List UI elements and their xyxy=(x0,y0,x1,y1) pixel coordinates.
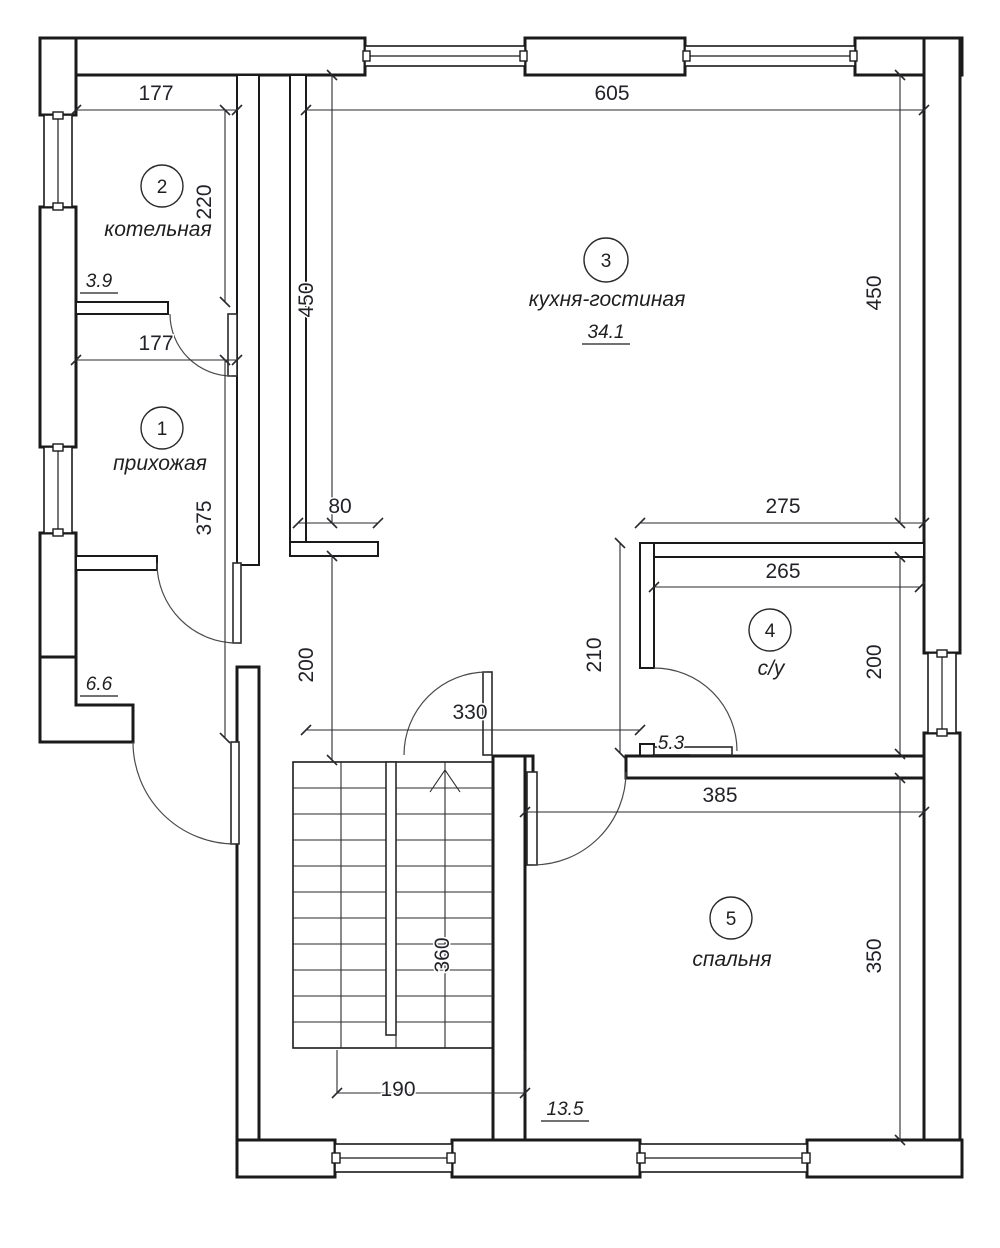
west-wall-lower-segment xyxy=(40,533,76,657)
stair-hall-west-wall xyxy=(237,667,259,1140)
dim-kitchen-depth-right: 450 xyxy=(863,275,886,310)
room-name: с/у xyxy=(758,657,786,680)
room-name: кухня-гостиная xyxy=(529,288,686,311)
stair-landing-window xyxy=(332,1144,455,1172)
bedroom-window xyxy=(637,1144,810,1172)
north-wall-middle-pier xyxy=(525,38,685,75)
west-wall-step-block xyxy=(40,657,133,742)
west-wall-top-segment xyxy=(40,38,76,115)
dim-bath-depth-right: 200 xyxy=(863,644,886,679)
room-number: 4 xyxy=(765,621,776,642)
kitchen-niche-stub-wall xyxy=(290,542,378,556)
room-label-kitchen: 3 кухня-гостиная 34.1 xyxy=(529,238,686,344)
boiler-door xyxy=(170,314,237,376)
room-area: 34.1 xyxy=(588,322,625,343)
dim-boiler-width: 177 xyxy=(138,82,173,105)
bedroom-west-wall xyxy=(493,756,525,1140)
floor-plan-drawing: 177 605 220 450 450 177 375 80 275 265 2… xyxy=(0,0,1000,1248)
hall-south-wall xyxy=(76,556,157,570)
dim-bedroom-width: 385 xyxy=(702,784,737,807)
room-label-bedroom: 5 спальня 13.5 xyxy=(541,897,772,1121)
dim-hall-depth: 375 xyxy=(193,500,216,535)
room-label-boiler: 2 котельная 3.9 xyxy=(80,165,212,293)
east-wall-upper-segment xyxy=(924,38,960,653)
boiler-window xyxy=(44,112,72,210)
south-wall-east-pier xyxy=(807,1140,962,1177)
dim-corridor-width: 330 xyxy=(452,701,487,724)
dim-stair-landing-width: 190 xyxy=(380,1078,415,1101)
room-number: 5 xyxy=(726,909,737,930)
room-labels: 2 котельная 3.9 1 прихожая 6.6 3 кухня-г… xyxy=(80,165,791,1121)
room-number: 1 xyxy=(157,419,168,440)
room-name: прихожая xyxy=(113,452,207,475)
dim-kitchen-width: 605 xyxy=(594,82,629,105)
dim-hall-width: 177 xyxy=(138,332,173,355)
dim-kitchen-depth-left: 450 xyxy=(295,282,318,317)
kitchen-window-right xyxy=(683,46,857,66)
room-label-hall: 1 прихожая 6.6 xyxy=(80,407,207,696)
floor-plan-page: 177 605 220 450 450 177 375 80 275 265 2… xyxy=(0,0,1000,1248)
south-wall-middle-pier xyxy=(452,1140,640,1177)
south-wall-west-pier xyxy=(237,1140,335,1177)
entry-door xyxy=(133,742,239,844)
room-label-bathroom: 4 с/у 5.3 xyxy=(652,609,791,755)
dim-bath-width: 265 xyxy=(765,560,800,583)
room-name: котельная xyxy=(104,218,211,241)
room-area: 5.3 xyxy=(658,733,685,754)
dim-stair-run: 360 xyxy=(431,937,454,972)
hall-door xyxy=(157,563,241,643)
west-wall-middle-segment xyxy=(40,207,76,447)
bathroom-north-wall xyxy=(640,543,924,557)
dim-bedroom-depth: 350 xyxy=(863,938,886,973)
room-number: 3 xyxy=(601,251,612,272)
dim-niche-width: 80 xyxy=(328,495,351,518)
dim-bath-offset: 275 xyxy=(765,495,800,518)
dim-boiler-depth: 220 xyxy=(193,184,216,219)
kitchen-window-left xyxy=(363,46,527,66)
dim-stair-hall-depth: 200 xyxy=(295,647,318,682)
bedroom-bathroom-south-wall xyxy=(626,756,924,778)
room-area: 13.5 xyxy=(547,1099,584,1120)
room-number: 2 xyxy=(157,177,168,198)
bathroom-west-wall xyxy=(640,543,654,668)
boiler-south-wall xyxy=(76,302,168,314)
room-name: спальня xyxy=(692,948,771,971)
dim-bath-depth-left: 210 xyxy=(583,637,606,672)
boiler-hall-east-wall xyxy=(237,75,259,565)
east-wall-lower-segment xyxy=(924,733,960,1177)
staircase xyxy=(293,762,493,1048)
bathroom-window xyxy=(928,650,956,736)
hall-window xyxy=(44,444,72,536)
north-wall-west-pier xyxy=(40,38,365,75)
room-area: 6.6 xyxy=(86,674,113,695)
bedroom-door xyxy=(527,772,626,865)
room-area: 3.9 xyxy=(86,271,113,292)
stair-center-stringer xyxy=(386,762,396,1035)
